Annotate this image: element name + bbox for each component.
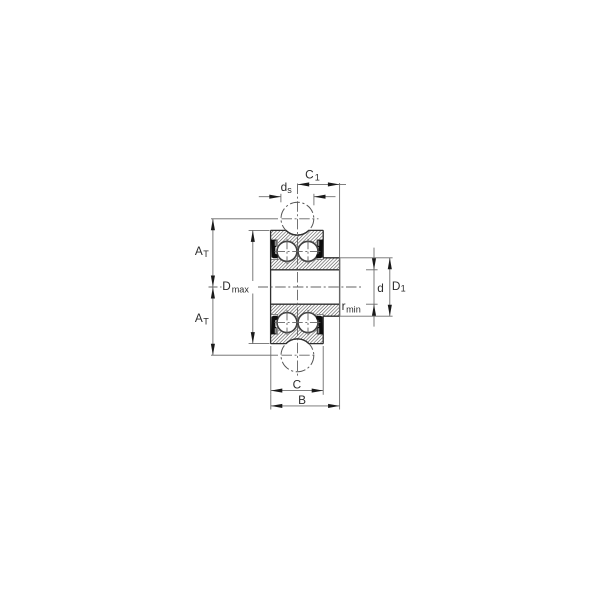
svg-text:d: d	[377, 281, 384, 295]
svg-text:r: r	[342, 299, 346, 313]
svg-text:D: D	[222, 279, 231, 293]
svg-text:1: 1	[315, 173, 320, 183]
svg-text:C: C	[305, 167, 314, 181]
svg-text:min: min	[346, 305, 361, 315]
svg-text:A: A	[195, 244, 203, 258]
svg-text:s: s	[287, 185, 292, 195]
svg-text:B: B	[298, 393, 306, 407]
svg-text:d: d	[281, 180, 288, 194]
svg-text:A: A	[195, 311, 203, 325]
svg-text:1: 1	[401, 284, 406, 294]
svg-text:D: D	[392, 279, 401, 293]
svg-text:C: C	[293, 377, 302, 391]
svg-text:T: T	[203, 249, 209, 259]
svg-text:T: T	[203, 317, 209, 327]
svg-text:max: max	[232, 284, 250, 294]
